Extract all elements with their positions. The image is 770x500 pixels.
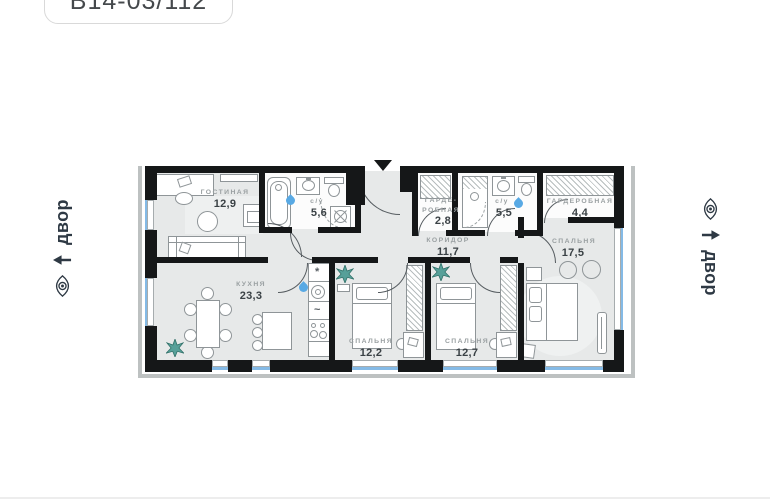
wall	[145, 230, 157, 278]
label-wardrobe-1: ГАРДЕ- РОБНАЯ	[422, 196, 460, 216]
wall	[148, 257, 268, 263]
kitchen-island-icon	[262, 312, 292, 350]
counter-divider	[308, 301, 331, 302]
dining-chair-icon	[201, 287, 214, 300]
burner-icon	[320, 323, 325, 328]
wardrobe-shelf-icon	[406, 265, 423, 331]
label-bedroom-1: СПАЛЬНЯ	[552, 237, 596, 247]
wall	[500, 257, 518, 263]
facade-line	[138, 166, 142, 378]
label-living: ГОСТИНАЯ	[201, 188, 250, 198]
counter-divider	[308, 281, 331, 282]
toilet-cistern	[518, 176, 535, 183]
wall	[355, 173, 361, 233]
counter-divider	[308, 319, 331, 320]
bed-blanket-line	[546, 283, 547, 341]
wall	[614, 166, 624, 228]
plant-icon	[432, 263, 450, 281]
unit-code: В14-03/112	[70, 0, 207, 16]
wardrobe-shelf-icon	[500, 265, 517, 331]
sink-bowl	[302, 180, 315, 191]
sink-tap	[306, 177, 311, 180]
tv-console-line	[601, 317, 602, 349]
bed-blanket-line	[352, 303, 392, 304]
facade-line	[138, 374, 635, 378]
sink-bowl	[497, 180, 510, 192]
dining-chair-icon	[219, 329, 232, 342]
round-table-icon	[197, 211, 218, 232]
area-living: 12,9	[214, 199, 237, 210]
label-bedroom-2: СПАЛЬНЯ	[349, 337, 393, 347]
wall	[270, 360, 352, 372]
burner-icon	[310, 330, 318, 338]
facade-line	[631, 166, 635, 378]
bathtub-drain	[275, 184, 282, 191]
toilet-cistern	[324, 177, 344, 184]
shelf-icon	[337, 284, 350, 292]
pillow-icon	[440, 287, 472, 300]
label-corridor: КОРИДОР	[426, 236, 469, 246]
toilet-icon	[328, 184, 340, 197]
area-wardrobe-1: 2,8	[435, 216, 451, 227]
wall	[329, 257, 335, 368]
dining-table-icon	[196, 300, 220, 348]
up-arrow-icon	[53, 254, 72, 266]
wall	[614, 330, 624, 372]
burner-icon	[319, 331, 327, 339]
wall	[412, 173, 418, 236]
wall	[148, 166, 346, 173]
label-bathroom-1: с/у	[310, 197, 324, 207]
wall	[515, 230, 537, 236]
tv-console-icon	[597, 312, 607, 354]
pouf-icon	[582, 260, 601, 279]
area-bathroom-2: 5,5	[496, 208, 512, 219]
wall	[412, 230, 418, 236]
window-sill	[147, 278, 154, 326]
sofa-back	[168, 242, 246, 243]
wall	[312, 257, 378, 263]
dining-chair-icon	[219, 303, 232, 316]
courtyard-direction-right: двор	[697, 172, 725, 322]
wall	[259, 227, 292, 233]
area-kitchen: 23,3	[240, 291, 263, 302]
area-bedroom-2: 12,2	[360, 348, 383, 359]
extractor-icon: *	[315, 267, 319, 278]
plant-icon	[166, 339, 184, 357]
sink-tap	[501, 176, 506, 179]
window-sill	[212, 360, 228, 367]
window-sill	[147, 200, 154, 230]
window-sill	[252, 360, 270, 367]
label-kitchen: КУХНЯ	[236, 280, 266, 290]
courtyard-label: двор	[52, 199, 73, 245]
window-sill	[614, 228, 621, 330]
chair-icon	[175, 192, 193, 205]
wall	[228, 360, 252, 372]
wall	[398, 360, 443, 372]
shelf-icon	[220, 174, 258, 182]
cooktop-icon: ~	[314, 305, 320, 316]
wall	[418, 166, 624, 173]
courtyard-direction-left: двор	[48, 173, 76, 323]
plant-icon	[336, 265, 354, 283]
label-bathroom-2: с/у	[495, 197, 509, 207]
courtyard-label: двор	[701, 250, 722, 296]
wall	[518, 263, 524, 368]
wall	[259, 173, 265, 233]
wall	[145, 166, 157, 200]
area-bedroom-1: 17,5	[562, 248, 585, 259]
wall	[145, 360, 212, 372]
floorplan-page: В14-03/112 двор двор	[0, 0, 770, 500]
area-wardrobe-2: 4,4	[572, 208, 588, 219]
pillow-icon	[529, 306, 542, 322]
window-sill	[443, 360, 497, 367]
shower-head-shelf	[463, 177, 487, 189]
burner-icon	[311, 323, 316, 328]
page-divider	[0, 497, 770, 499]
kitchen-sink-drain	[315, 289, 321, 295]
area-corridor: 11,7	[437, 247, 459, 258]
wall	[537, 173, 543, 236]
entrance-marker-icon	[374, 160, 392, 171]
label-bedroom-3: СПАЛЬНЯ	[445, 337, 489, 347]
up-arrow-icon	[702, 229, 721, 241]
pillow-icon	[529, 287, 542, 303]
area-bathroom-1: 5,6	[311, 208, 327, 219]
toilet-icon	[521, 183, 532, 196]
wardrobe-shelf-icon	[546, 175, 614, 196]
area-bedroom-3: 12,7	[456, 348, 479, 359]
window-sill	[545, 360, 603, 367]
label-wardrobe-2: ГАРДЕРОБНАЯ	[547, 197, 614, 207]
eye-icon	[55, 275, 70, 297]
counter-divider	[308, 341, 331, 342]
pouf-icon	[559, 261, 577, 279]
wall	[425, 257, 431, 368]
wall	[318, 227, 361, 233]
sofa-armrest	[176, 236, 177, 259]
bed-blanket-line	[436, 303, 476, 304]
unit-badge[interactable]: В14-03/112	[44, 0, 233, 24]
window-sill	[352, 360, 398, 367]
nightstand-icon	[526, 267, 542, 281]
sofa-armrest	[238, 236, 239, 259]
eye-icon	[704, 198, 719, 220]
shower-drain	[470, 192, 479, 201]
